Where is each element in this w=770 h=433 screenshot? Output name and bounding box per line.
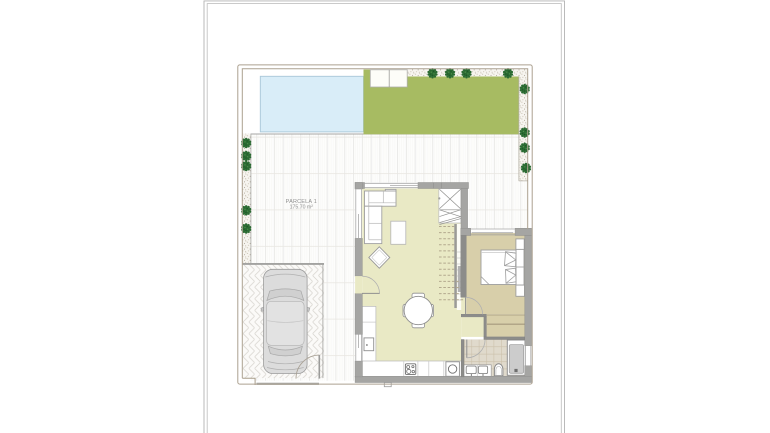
svg-text:175.70 m²: 175.70 m²	[290, 205, 314, 211]
